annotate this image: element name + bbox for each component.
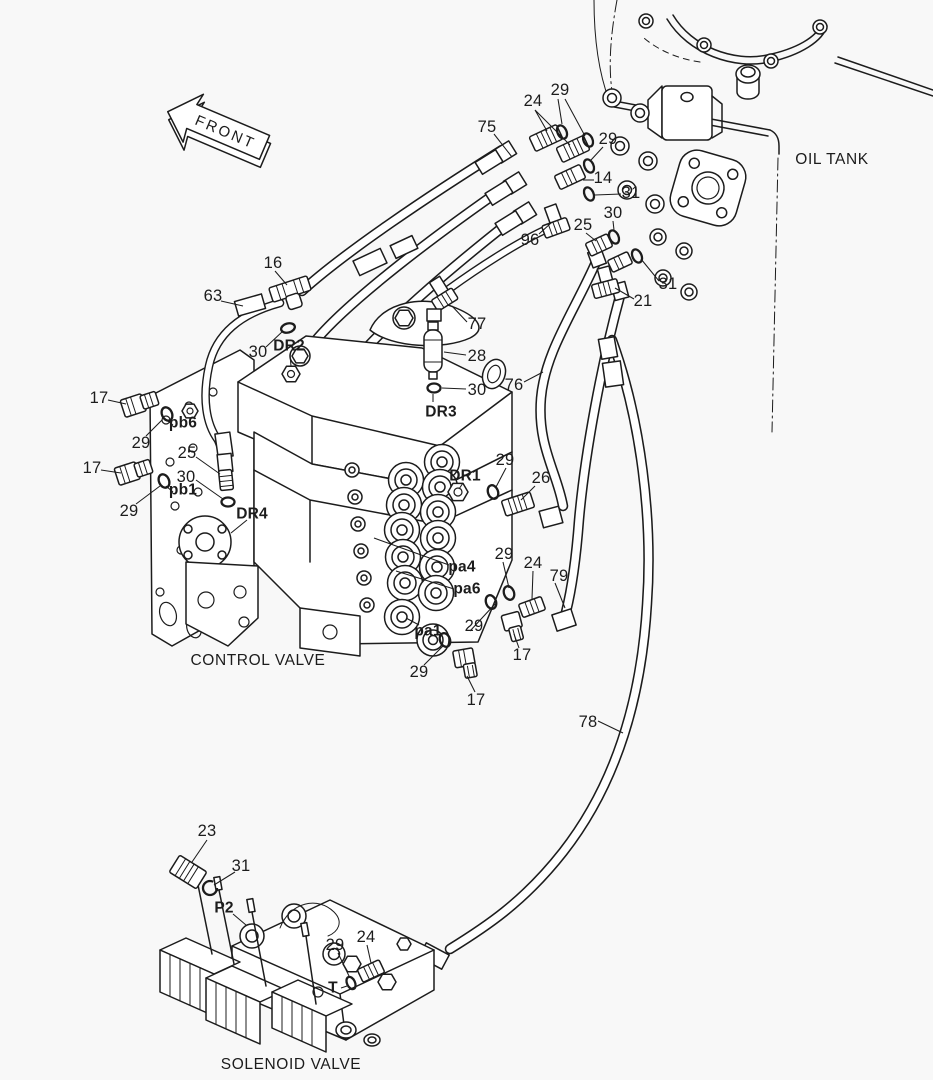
oil-tank bbox=[594, 0, 933, 432]
callout-P2: P2 bbox=[214, 900, 233, 916]
callout-16: 16 bbox=[264, 255, 283, 272]
callout-31: 31 bbox=[232, 858, 251, 875]
callout-17: 17 bbox=[90, 390, 109, 407]
tank-bolt bbox=[639, 14, 653, 28]
callout-30: 30 bbox=[604, 205, 623, 222]
callout-29: 29 bbox=[495, 546, 514, 563]
adapter-24 bbox=[518, 596, 545, 617]
callout-pb1: pb1 bbox=[169, 482, 197, 498]
callout-24: 24 bbox=[357, 929, 376, 946]
adapter-23 bbox=[169, 855, 207, 889]
parts-diagram-page: FRONT OIL TANK CONTROL VALVE SOLENOID VA… bbox=[0, 0, 933, 1080]
callout-63: 63 bbox=[204, 288, 223, 305]
callout-pa1: pa1 bbox=[414, 623, 441, 639]
solenoid-valve bbox=[160, 867, 434, 1052]
hose-end-79 bbox=[552, 609, 576, 631]
tank-cap-nut bbox=[736, 65, 760, 99]
front-arrow: FRONT bbox=[156, 84, 278, 180]
callout-31: 31 bbox=[622, 185, 641, 202]
tank-bolt bbox=[764, 54, 778, 68]
pump-mount bbox=[179, 516, 231, 568]
callout-24: 24 bbox=[524, 93, 543, 110]
callout-29: 29 bbox=[551, 82, 570, 99]
callout-pa4: pa4 bbox=[448, 559, 475, 575]
callout-DR2: DR2 bbox=[273, 338, 305, 354]
callout-29: 29 bbox=[496, 452, 515, 469]
callout-DR4: DR4 bbox=[236, 506, 268, 522]
callout-29: 29 bbox=[132, 435, 151, 452]
elbow-17 bbox=[114, 457, 154, 485]
callout-30: 30 bbox=[468, 382, 487, 399]
control-valve-label: CONTROL VALVE bbox=[191, 652, 326, 670]
callout-DR1: DR1 bbox=[449, 468, 481, 484]
callout-25: 25 bbox=[574, 217, 593, 234]
callout-21: 21 bbox=[634, 293, 653, 310]
callout-17: 17 bbox=[83, 460, 102, 477]
tank-bolt bbox=[813, 20, 827, 34]
callout-78: 78 bbox=[579, 714, 598, 731]
callout-17: 17 bbox=[467, 692, 486, 709]
diagram-artwork: FRONT bbox=[0, 0, 933, 1080]
adapter bbox=[607, 251, 632, 272]
callout-29: 29 bbox=[326, 937, 345, 954]
callout-DR3: DR3 bbox=[425, 404, 457, 420]
callout-29: 29 bbox=[410, 664, 429, 681]
callout-pa6: pa6 bbox=[453, 581, 480, 597]
callout-29: 29 bbox=[599, 131, 618, 148]
adapter-14 bbox=[554, 164, 586, 189]
callout-25: 25 bbox=[178, 445, 197, 462]
adapter-25 bbox=[218, 469, 233, 490]
elbow-17 bbox=[453, 648, 478, 680]
callout-14: 14 bbox=[594, 170, 613, 187]
callout-79: 79 bbox=[550, 568, 569, 585]
callout-24: 24 bbox=[524, 555, 543, 572]
callout-26: 26 bbox=[532, 470, 551, 487]
solenoid-valve-label: SOLENOID VALVE bbox=[221, 1056, 361, 1074]
callout-30: 30 bbox=[249, 344, 268, 361]
callout-75: 75 bbox=[478, 119, 497, 136]
callout-T: T bbox=[328, 980, 338, 996]
callout-28: 28 bbox=[468, 348, 487, 365]
tank-bolt bbox=[697, 38, 711, 52]
suction-flange bbox=[666, 146, 750, 230]
callout-96: 96 bbox=[521, 232, 540, 249]
callout-17: 17 bbox=[513, 647, 532, 664]
callout-76: 76 bbox=[505, 377, 524, 394]
tank-bracket bbox=[648, 86, 722, 140]
callout-pb6: pb6 bbox=[169, 415, 197, 431]
callout-29: 29 bbox=[465, 618, 484, 635]
callout-23: 23 bbox=[198, 823, 217, 840]
callout-77: 77 bbox=[468, 316, 487, 333]
hose-end-26 bbox=[539, 506, 563, 528]
dr2-plug bbox=[282, 366, 300, 382]
callout-29: 29 bbox=[120, 503, 139, 520]
oil-tank-label: OIL TANK bbox=[795, 151, 868, 169]
dr1-port bbox=[448, 483, 468, 500]
callout-31: 31 bbox=[659, 276, 678, 293]
